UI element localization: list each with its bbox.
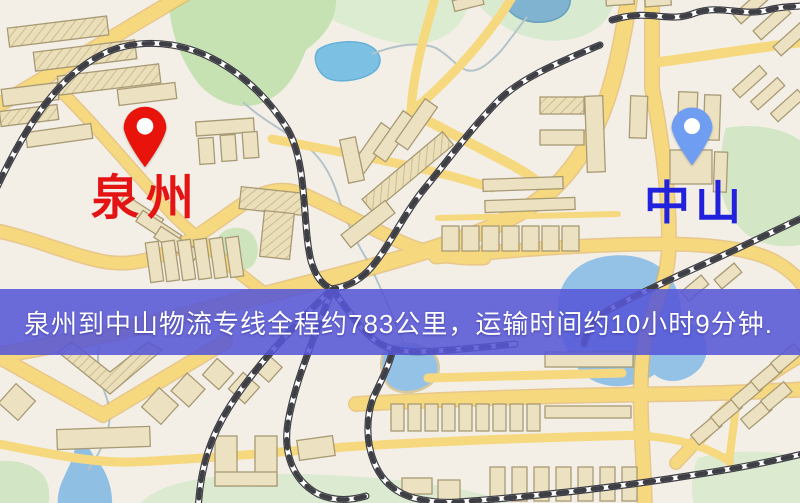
route-info-text: 泉州到中山物流专线全程约783公里，运输时间约10小时9分钟. — [24, 304, 773, 341]
destination-pin-icon[interactable] — [667, 103, 717, 167]
map-background — [0, 0, 800, 503]
route-info-banner: 泉州到中山物流专线全程约783公里，运输时间约10小时9分钟. — [0, 289, 800, 355]
origin-pin-icon[interactable] — [119, 101, 171, 170]
origin-label: 泉州 — [91, 175, 201, 223]
destination-label: 中山 — [644, 180, 746, 226]
map-image: 泉州 中山 泉州到中山物流专线全程约783公里，运输时间约10小时9分钟. — [0, 0, 800, 503]
